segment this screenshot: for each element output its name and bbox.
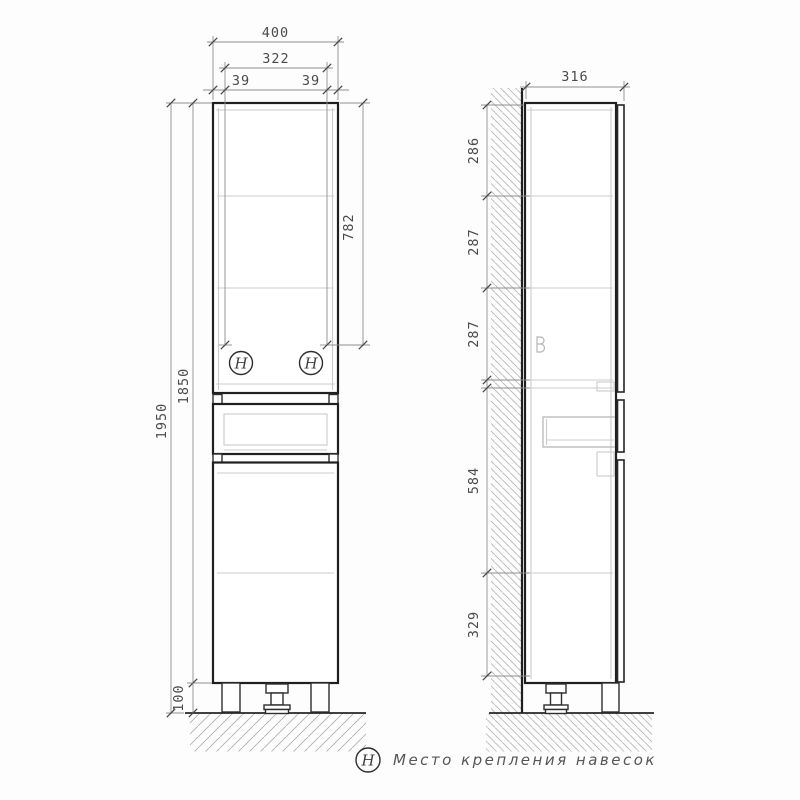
side-carcass bbox=[525, 103, 616, 683]
hinge-symbol-right: H bbox=[303, 355, 318, 373]
front-floor-hatch bbox=[190, 714, 366, 752]
dim-hinge-offset-right: 39 bbox=[302, 73, 320, 89]
front-carcass-edge-left-1 bbox=[213, 395, 222, 405]
side-lower-door-strip bbox=[618, 460, 625, 682]
front-legs bbox=[222, 683, 329, 714]
front-upper-door bbox=[213, 103, 338, 393]
dim-section-4: 584 bbox=[466, 467, 482, 494]
dim-section-1: 286 bbox=[466, 137, 482, 164]
side-cabinet bbox=[525, 103, 616, 683]
dim-height-overall: 1950 bbox=[154, 403, 170, 440]
side-leg-back bbox=[602, 683, 619, 712]
front-cabinet: H H bbox=[213, 103, 338, 683]
legend: H Место крепления навесок bbox=[356, 748, 657, 772]
side-upper-door-strip bbox=[618, 105, 625, 392]
legend-hinge-symbol: H bbox=[360, 752, 375, 770]
hinge-symbol-left: H bbox=[233, 355, 248, 373]
front-carcass-edge-right-1 bbox=[329, 395, 338, 405]
dim-height-cabinet: 1850 bbox=[176, 368, 192, 405]
front-leg-right bbox=[311, 683, 329, 712]
front-floor bbox=[185, 713, 366, 752]
front-carcass-edge-right-2 bbox=[329, 454, 338, 463]
side-floor bbox=[486, 713, 654, 752]
dim-depth: 316 bbox=[561, 69, 588, 85]
dim-section-5: 329 bbox=[466, 611, 482, 638]
dim-hinge-offset-left: 39 bbox=[232, 73, 250, 89]
dim-hinge-from-top: 782 bbox=[341, 213, 357, 240]
dim-width-overall: 400 bbox=[262, 25, 289, 41]
dim-section-3: 287 bbox=[466, 320, 482, 347]
front-leg-left bbox=[222, 683, 240, 712]
technical-drawing: H H bbox=[0, 0, 800, 800]
dim-leg-height: 100 bbox=[171, 684, 187, 711]
dim-section-2: 287 bbox=[466, 228, 482, 255]
side-floor-hatch bbox=[486, 714, 652, 752]
paper-background bbox=[0, 0, 800, 800]
wall-hatch bbox=[491, 88, 522, 713]
side-drawer-front-strip bbox=[618, 400, 625, 452]
side-wall bbox=[491, 88, 522, 713]
dim-width-inner: 322 bbox=[262, 51, 289, 67]
front-drawer bbox=[213, 404, 338, 454]
legend-label: Место крепления навесок bbox=[393, 751, 657, 769]
front-carcass-edge-left-2 bbox=[213, 454, 222, 463]
